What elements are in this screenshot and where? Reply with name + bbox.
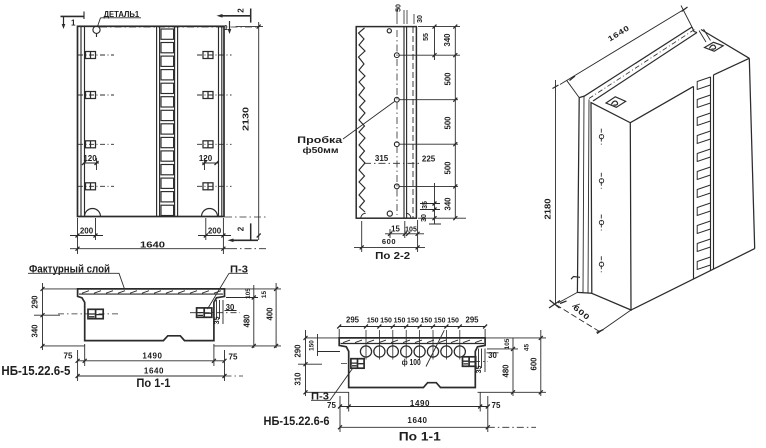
- svg-text:По 2-2: По 2-2: [375, 250, 410, 262]
- svg-text:75: 75: [229, 352, 238, 361]
- svg-text:1640: 1640: [144, 366, 164, 375]
- svg-text:480: 480: [242, 314, 251, 328]
- svg-text:45: 45: [524, 344, 531, 352]
- svg-text:500: 500: [444, 72, 453, 86]
- svg-text:1640: 1640: [140, 239, 165, 249]
- svg-text:30: 30: [417, 15, 424, 23]
- svg-text:15: 15: [391, 224, 400, 233]
- svg-text:150: 150: [367, 318, 379, 325]
- svg-text:ф50мм: ф50мм: [303, 145, 339, 155]
- svg-text:55: 55: [423, 33, 430, 41]
- svg-text:НБ-15.22.6-5: НБ-15.22.6-5: [1, 363, 70, 378]
- svg-text:500: 500: [444, 116, 453, 130]
- svg-text:105: 105: [245, 288, 252, 299]
- svg-text:Фактурный слой: Фактурный слой: [29, 264, 110, 276]
- svg-text:600: 600: [530, 357, 539, 371]
- svg-text:1640: 1640: [407, 416, 427, 425]
- svg-text:225: 225: [422, 154, 436, 163]
- svg-text:295: 295: [465, 316, 479, 325]
- svg-text:310: 310: [294, 372, 303, 386]
- svg-text:150: 150: [434, 318, 446, 325]
- svg-text:75: 75: [492, 401, 501, 410]
- svg-text:35: 35: [214, 317, 221, 325]
- svg-text:30: 30: [488, 351, 497, 360]
- svg-text:30: 30: [421, 214, 428, 222]
- svg-text:105: 105: [504, 338, 511, 349]
- svg-text:По 1-1: По 1-1: [399, 432, 442, 444]
- svg-text:30: 30: [226, 303, 235, 312]
- svg-text:150: 150: [420, 318, 432, 325]
- svg-text:105: 105: [405, 226, 417, 233]
- svg-text:290: 290: [294, 344, 303, 358]
- svg-text:2130: 2130: [241, 107, 251, 131]
- svg-text:200: 200: [80, 227, 94, 236]
- svg-text:150: 150: [447, 318, 459, 325]
- svg-text:2: 2: [237, 226, 246, 231]
- svg-text:600: 600: [382, 237, 396, 246]
- svg-text:150: 150: [407, 318, 419, 325]
- svg-text:35: 35: [422, 201, 429, 209]
- svg-text:75: 75: [327, 401, 336, 410]
- svg-text:35: 35: [476, 366, 483, 374]
- svg-text:1: 1: [71, 19, 76, 28]
- svg-text:ф 100: ф 100: [402, 358, 421, 367]
- svg-text:По 1-1: По 1-1: [136, 378, 171, 390]
- svg-text:1490: 1490: [142, 351, 162, 360]
- svg-text:2: 2: [237, 8, 246, 13]
- svg-text:295: 295: [346, 316, 360, 325]
- svg-text:400: 400: [266, 307, 275, 321]
- svg-text:340: 340: [443, 33, 452, 47]
- svg-text:290: 290: [31, 295, 40, 309]
- svg-text:75: 75: [64, 351, 73, 360]
- svg-text:340: 340: [444, 197, 453, 211]
- svg-text:150: 150: [394, 318, 406, 325]
- svg-text:50: 50: [396, 4, 403, 12]
- svg-text:150: 150: [380, 318, 392, 325]
- svg-text:15: 15: [261, 291, 268, 299]
- svg-text:1490: 1490: [410, 399, 430, 408]
- svg-text:1: 1: [224, 25, 228, 32]
- svg-text:150: 150: [309, 340, 316, 351]
- svg-text:340: 340: [31, 324, 40, 338]
- svg-text:2180: 2180: [543, 198, 553, 219]
- svg-text:315: 315: [375, 154, 389, 163]
- svg-text:480: 480: [502, 364, 511, 378]
- svg-text:НБ-15.22.6-6: НБ-15.22.6-6: [264, 416, 330, 428]
- svg-text:200: 200: [208, 227, 222, 236]
- svg-text:500: 500: [444, 161, 453, 175]
